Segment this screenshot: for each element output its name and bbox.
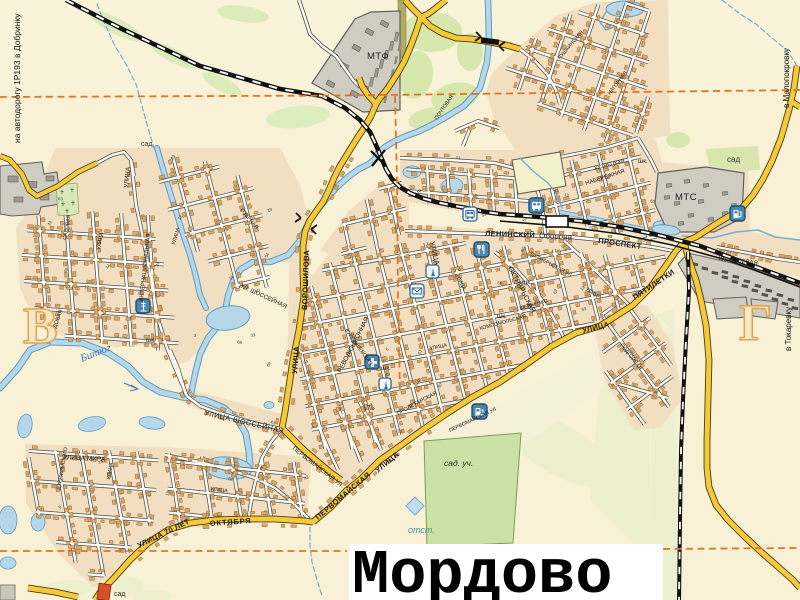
svg-text:Оборона: Оборона bbox=[539, 231, 573, 242]
svg-text:отст.: отст. bbox=[408, 525, 435, 535]
svg-text:в Малопокровку: в Малопокровку bbox=[782, 48, 791, 108]
svg-text:шк.: шк. bbox=[638, 158, 648, 165]
svg-text:в Токаревку: в Токаревку bbox=[784, 307, 793, 351]
svg-text:Г: Г bbox=[739, 295, 772, 352]
svg-text:шк.: шк. bbox=[522, 279, 532, 286]
svg-text:МТС: МТС bbox=[675, 192, 697, 203]
svg-text:сад: сад bbox=[114, 591, 125, 598]
svg-text:сад: сад bbox=[727, 155, 740, 164]
svg-text:Мордово: Мордово bbox=[352, 540, 612, 600]
svg-text:сад. уч.: сад. уч. bbox=[444, 458, 473, 468]
svg-text:шк.: шк. bbox=[146, 337, 156, 344]
svg-text:В: В bbox=[23, 298, 58, 355]
svg-text:на автодорогу 1Р193 в Добрин: на автодорогу 1Р193 в Добринку bbox=[12, 13, 22, 143]
svg-text:шк.: шк. bbox=[381, 365, 391, 372]
svg-text:МТФ: МТФ bbox=[367, 51, 389, 62]
svg-text:сад: сад bbox=[141, 141, 152, 148]
svg-text:ЛЕНИНСКИЙ: ЛЕНИНСКИЙ bbox=[485, 229, 535, 240]
